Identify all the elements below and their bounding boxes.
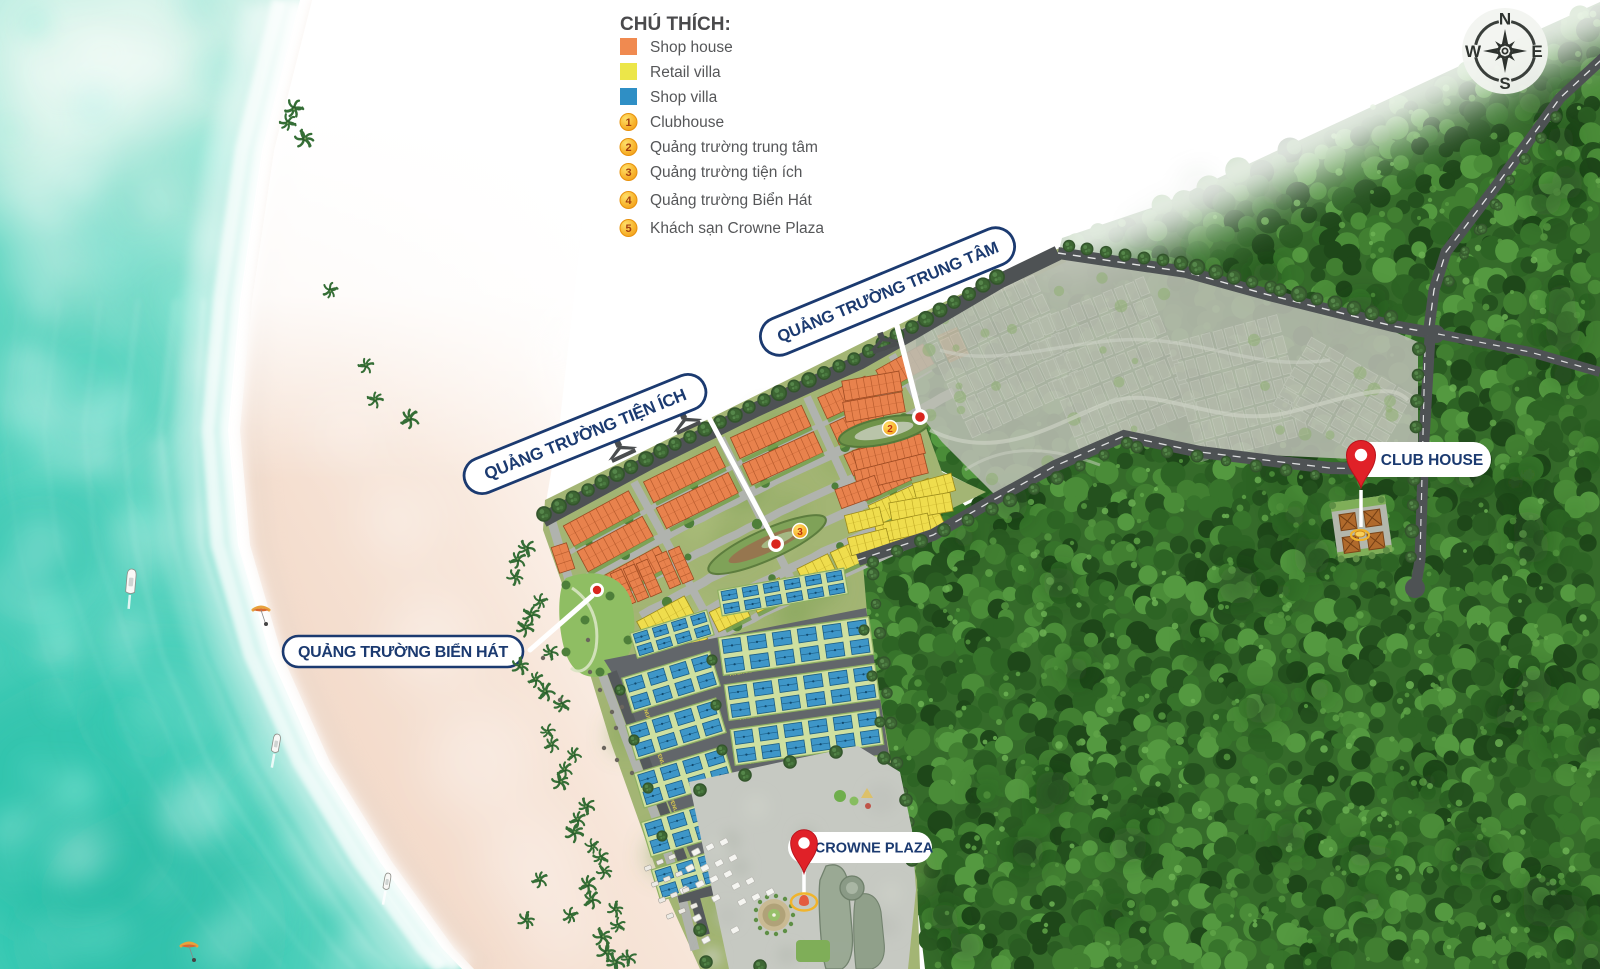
svg-text:N: N	[1499, 10, 1511, 29]
svg-text:QUẢNG TRƯỜNG BIỂN HÁT: QUẢNG TRƯỜNG BIỂN HÁT	[298, 642, 508, 661]
svg-text:Quảng trường Biển Hát: Quảng trường Biển Hát	[650, 192, 813, 209]
svg-text:CLUB HOUSE: CLUB HOUSE	[1381, 452, 1483, 469]
svg-text:Shop house: Shop house	[650, 39, 733, 56]
svg-text:CHÚ THÍCH:: CHÚ THÍCH:	[620, 13, 731, 35]
svg-text:Quảng trường tiện ích: Quảng trường tiện ích	[650, 164, 802, 181]
svg-text:Quảng trường trung tâm: Quảng trường trung tâm	[650, 139, 818, 156]
svg-text:2: 2	[887, 424, 893, 435]
svg-text:E: E	[1531, 42, 1542, 61]
svg-text:4: 4	[625, 195, 632, 207]
svg-text:1: 1	[625, 117, 631, 129]
svg-text:Khách sạn Crowne Plaza: Khách sạn Crowne Plaza	[650, 220, 824, 237]
svg-text:Retail villa: Retail villa	[650, 64, 721, 81]
svg-text:CROWNE PLAZA: CROWNE PLAZA	[815, 841, 934, 857]
svg-text:3: 3	[625, 167, 631, 179]
svg-text:S: S	[1499, 74, 1510, 93]
svg-text:Clubhouse: Clubhouse	[650, 114, 724, 131]
svg-text:2: 2	[625, 142, 631, 154]
svg-text:5: 5	[625, 223, 631, 235]
svg-text:Shop villa: Shop villa	[650, 89, 718, 106]
svg-text:W: W	[1465, 42, 1482, 61]
svg-text:3: 3	[797, 527, 803, 538]
